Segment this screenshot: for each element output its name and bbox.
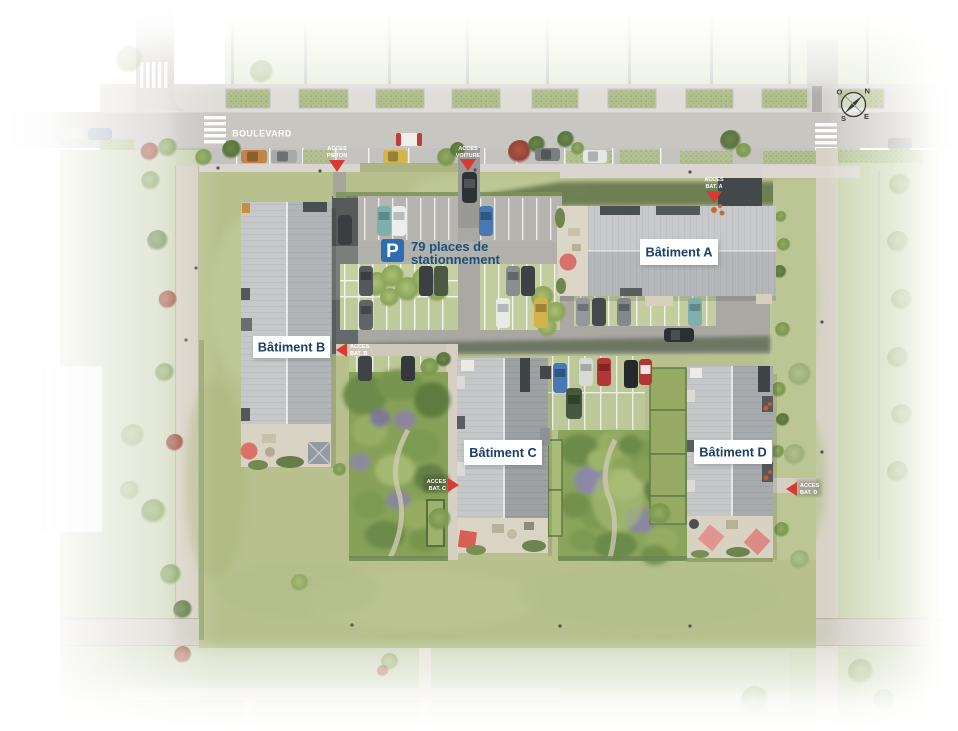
svg-text:ACCES: ACCES (704, 177, 724, 183)
svg-text:stationnement: stationnement (411, 252, 501, 267)
svg-text:Bâtiment D: Bâtiment D (699, 445, 767, 460)
svg-text:O: O (837, 88, 843, 97)
svg-text:ACCES: ACCES (427, 479, 447, 485)
svg-text:ACCES: ACCES (458, 146, 478, 152)
svg-text:BAT. C: BAT. C (429, 486, 446, 492)
svg-text:Bâtiment B: Bâtiment B (258, 340, 326, 355)
svg-text:BOULEVARD: BOULEVARD (232, 129, 292, 139)
svg-text:BAT. A: BAT. A (705, 184, 722, 190)
svg-text:Bâtiment C: Bâtiment C (469, 445, 537, 460)
svg-text:PIETON: PIETON (327, 153, 347, 159)
svg-text:BAT. B: BAT. B (350, 351, 367, 357)
svg-text:VOITURE: VOITURE (456, 153, 481, 159)
svg-text:S: S (841, 114, 846, 123)
svg-text:BAT. D: BAT. D (800, 490, 817, 496)
svg-text:ACCES: ACCES (800, 483, 820, 489)
svg-text:N: N (865, 87, 870, 96)
svg-text:P: P (386, 241, 399, 262)
svg-text:Bâtiment A: Bâtiment A (645, 245, 712, 260)
svg-text:ACCES: ACCES (327, 146, 347, 152)
svg-text:ACCES: ACCES (350, 344, 370, 350)
svg-text:E: E (864, 112, 869, 121)
